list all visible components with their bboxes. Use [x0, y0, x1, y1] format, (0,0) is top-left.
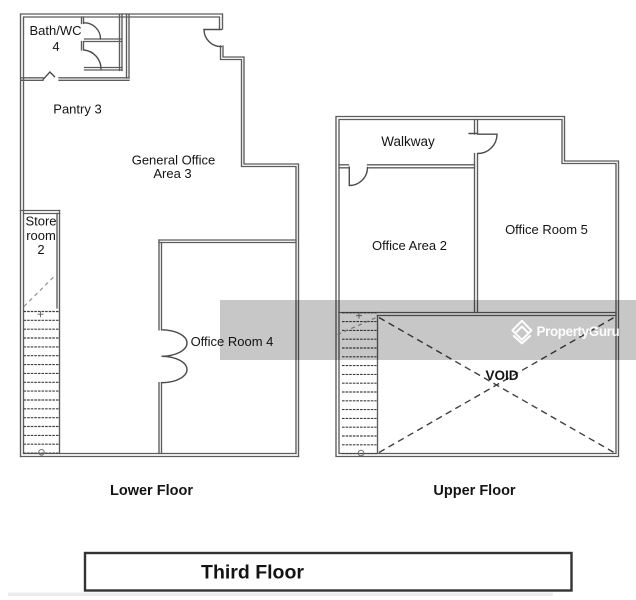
svg-text:Upper Floor: Upper Floor [433, 483, 516, 499]
svg-text:Store: Store [25, 214, 56, 229]
svg-text:4: 4 [52, 39, 59, 54]
svg-text:Office Area 2: Office Area 2 [372, 238, 447, 253]
svg-text:2: 2 [37, 242, 44, 257]
svg-text:Office Room 5: Office Room 5 [505, 222, 588, 237]
svg-text:Third Floor: Third Floor [201, 562, 304, 584]
svg-text:Walkway: Walkway [381, 134, 435, 149]
svg-text:VOID: VOID [485, 368, 518, 383]
svg-text:Pantry 3: Pantry 3 [53, 102, 101, 117]
svg-text:Bath/WC: Bath/WC [29, 23, 81, 38]
svg-text:Area 3: Area 3 [153, 166, 191, 181]
svg-text:PropertyGuru: PropertyGuru [537, 324, 620, 339]
svg-text:Lower Floor: Lower Floor [110, 483, 193, 499]
svg-text:room: room [26, 228, 56, 243]
